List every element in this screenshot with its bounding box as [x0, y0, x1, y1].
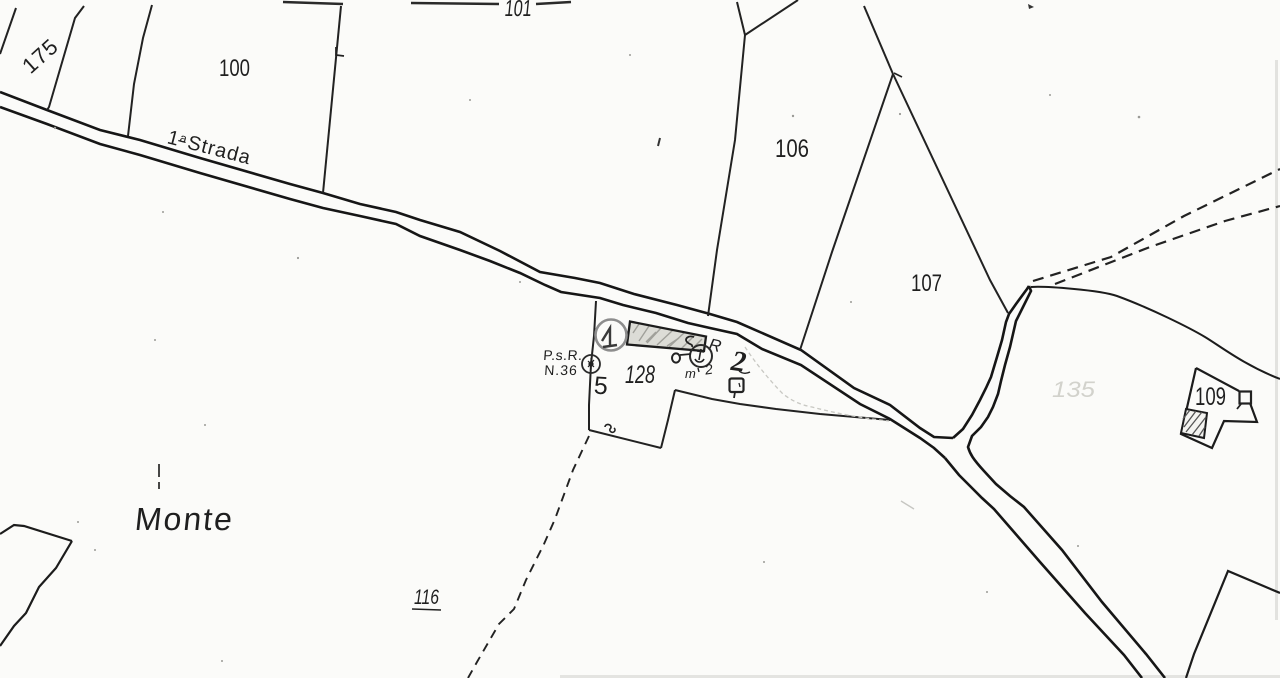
svg-text:128: 128 [625, 361, 655, 389]
svg-text:109: 109 [1195, 383, 1226, 411]
svg-text:5: 5 [593, 372, 609, 401]
svg-text:P.s.R.: P.s.R. [543, 347, 583, 363]
svg-text:Monte: Monte [133, 501, 236, 537]
svg-text:100: 100 [219, 55, 250, 82]
svg-text:m: m [685, 366, 696, 381]
svg-text:116: 116 [414, 586, 439, 609]
svg-text:N.36: N.36 [544, 362, 579, 378]
svg-text:101: 101 [503, 0, 533, 21]
svg-text:106: 106 [775, 135, 809, 163]
svg-text:107: 107 [911, 270, 942, 297]
svg-text:135: 135 [1052, 377, 1096, 402]
